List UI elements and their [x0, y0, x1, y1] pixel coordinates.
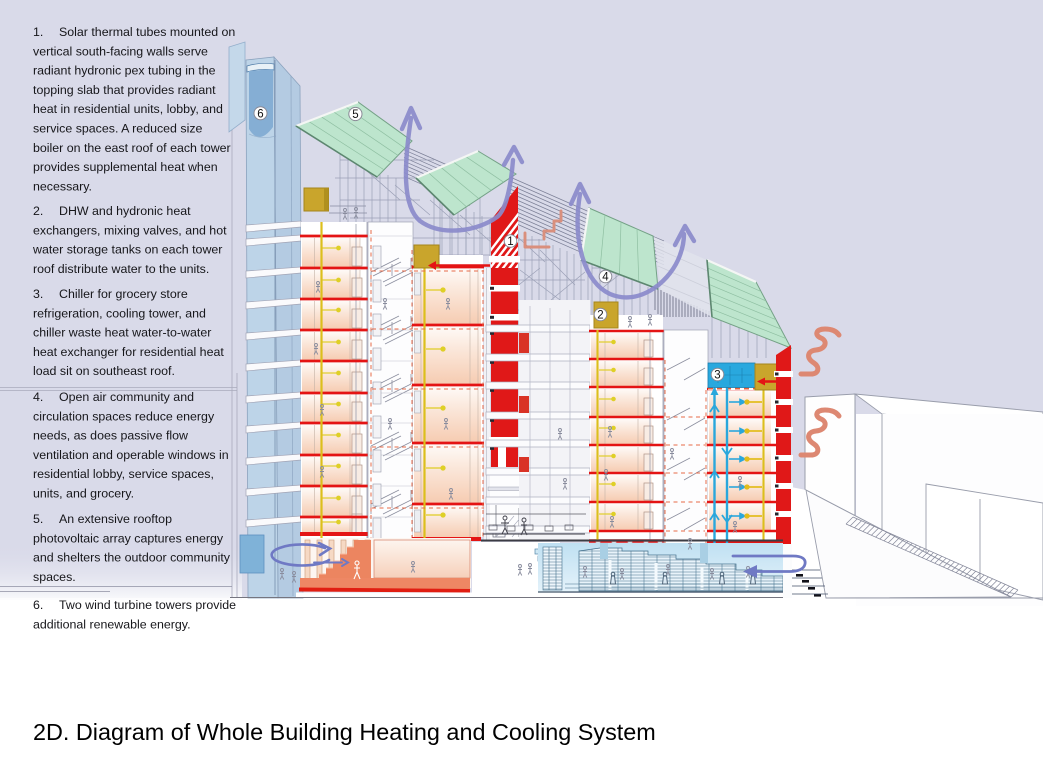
svg-text:2: 2 — [597, 310, 603, 322]
svg-text:1: 1 — [507, 236, 513, 248]
svg-text:boiler on the east roof of eac: boiler on the east roof of each tower — [33, 141, 231, 155]
svg-text:spaces.: spaces. — [33, 570, 76, 584]
svg-text:6.: 6. — [33, 598, 43, 612]
svg-text:service spaces. A reduced size: service spaces. A reduced size — [33, 122, 203, 136]
svg-text:6: 6 — [257, 108, 263, 120]
svg-text:exchangers, mixing valves, and: exchangers, mixing valves, and hot — [33, 223, 227, 237]
svg-text:3.: 3. — [33, 287, 43, 301]
svg-text:water storage tanks on each to: water storage tanks on each tower — [32, 243, 222, 257]
svg-text:Open air community and: Open air community and — [59, 390, 194, 404]
svg-text:Two wind turbine towers provid: Two wind turbine towers provide — [59, 598, 236, 612]
svg-text:and shelters the outdoor commu: and shelters the outdoor community — [33, 551, 231, 565]
svg-text:DHW and hydronic heat: DHW and hydronic heat — [59, 204, 191, 218]
svg-text:heat in residential units, lob: heat in residential units, lobby, and — [33, 102, 223, 116]
svg-text:roof distribute water to the u: roof distribute water to the units. — [33, 262, 209, 276]
svg-text:chiller waste heat water-to-wa: chiller waste heat water-to-water — [33, 326, 211, 340]
svg-text:4.: 4. — [33, 390, 43, 404]
svg-text:needs, as does passive flow: needs, as does passive flow — [33, 429, 188, 443]
svg-text:2.: 2. — [33, 204, 43, 218]
svg-text:photovoltaic array captures en: photovoltaic array captures energy — [33, 531, 224, 545]
svg-text:radiant hydronic pex tubing in: radiant hydronic pex tubing in the — [33, 64, 216, 78]
svg-text:5: 5 — [352, 109, 358, 121]
svg-text:provides supplemental heat whe: provides supplemental heat when — [33, 160, 218, 174]
svg-text:3: 3 — [714, 370, 720, 382]
svg-text:4: 4 — [602, 272, 609, 284]
svg-text:1.: 1. — [33, 25, 43, 39]
svg-text:residential lobby, service spa: residential lobby, service spaces, — [33, 467, 214, 481]
svg-text:5.: 5. — [33, 512, 43, 526]
svg-text:vertical south-facing walls se: vertical south-facing walls serve — [33, 44, 208, 58]
svg-text:Solar thermal tubes mounted on: Solar thermal tubes mounted on — [59, 25, 235, 39]
svg-text:An extensive rooftop: An extensive rooftop — [59, 512, 172, 526]
svg-text:heat exchanger for residential: heat exchanger for residential heat — [33, 345, 224, 359]
svg-text:ventilation and operable windo: ventilation and operable windows in — [33, 448, 229, 462]
svg-text:refrigeration, cooling tower,: refrigeration, cooling tower, and — [33, 306, 206, 320]
svg-text:additional renewable energy.: additional renewable energy. — [33, 617, 191, 631]
svg-text:units, and grocery.: units, and grocery. — [33, 487, 134, 501]
svg-text:circulation spaces reduce ener: circulation spaces reduce energy — [33, 409, 215, 423]
svg-text:2D. Diagram of Whole Building: 2D. Diagram of Whole Building Heating an… — [33, 719, 656, 745]
svg-text:Chiller for grocery store: Chiller for grocery store — [59, 287, 188, 301]
svg-text:necessary.: necessary. — [33, 179, 92, 193]
svg-text:load sit on southeast roof.: load sit on southeast roof. — [33, 364, 175, 378]
svg-text:topping slab that provides rad: topping slab that provides radiant — [33, 83, 216, 97]
